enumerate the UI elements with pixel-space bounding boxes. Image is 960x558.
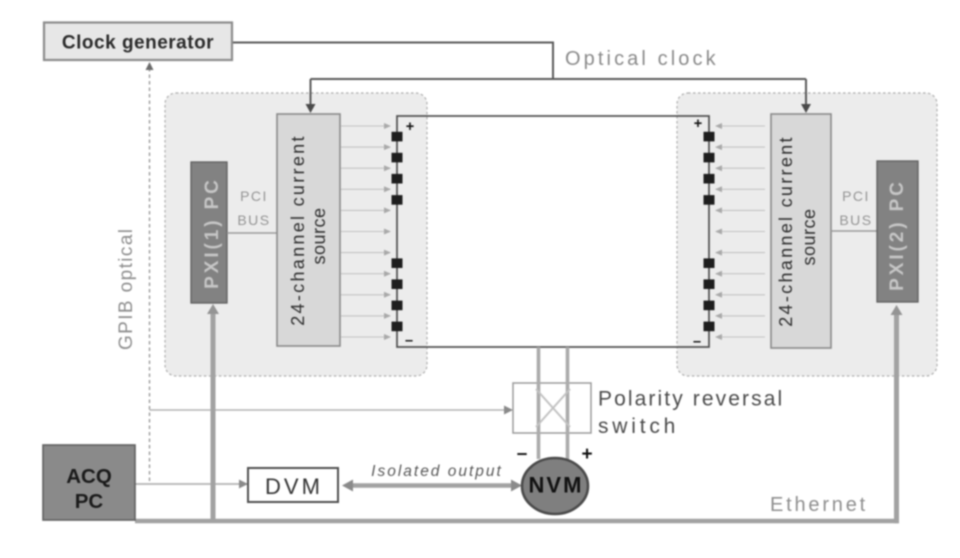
svg-text:GPIB optical: GPIB optical (116, 228, 137, 350)
svg-text:BUS: BUS (839, 212, 872, 228)
svg-text:Clock generator: Clock generator (62, 33, 214, 54)
svg-text:+: + (406, 119, 414, 135)
svg-text:24-channel current: 24-channel current (288, 134, 308, 326)
svg-text:switch: switch (598, 415, 679, 438)
svg-text:source: source (799, 208, 819, 265)
svg-text:+: + (694, 116, 702, 132)
svg-text:Polarity reversal: Polarity reversal (598, 388, 784, 411)
svg-text:PCI: PCI (842, 188, 870, 204)
svg-text:BUS: BUS (237, 212, 270, 228)
svg-text:PC: PC (75, 490, 104, 513)
svg-text:Isolated output: Isolated output (371, 463, 503, 480)
svg-text:DVM: DVM (265, 474, 323, 499)
svg-text:24-channel current: 24-channel current (776, 135, 796, 327)
svg-text:PCI: PCI (240, 188, 268, 204)
svg-text:PXI(1) PC: PXI(1) PC (202, 177, 223, 289)
svg-text:–: – (405, 333, 413, 349)
svg-text:Ethernet: Ethernet (770, 494, 868, 516)
svg-text:–: – (693, 334, 701, 350)
svg-text:–: – (517, 444, 528, 465)
svg-text:NVM: NVM (529, 473, 584, 498)
svg-text:+: + (581, 444, 592, 465)
svg-text:ACQ: ACQ (66, 465, 112, 488)
svg-text:PXI(2) PC: PXI(2) PC (887, 179, 908, 291)
svg-text:Optical clock: Optical clock (565, 48, 719, 70)
svg-text:source: source (309, 207, 329, 264)
